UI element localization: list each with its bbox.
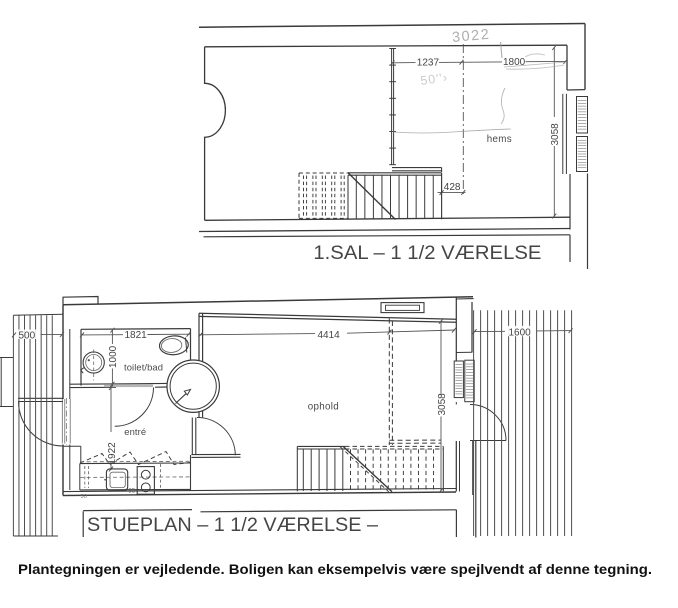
svg-text:1821: 1821 — [125, 330, 148, 341]
svg-text:toilet/bad: toilet/bad — [124, 361, 163, 372]
svg-text:1.SAL – 1 1/2 VÆRELSE: 1.SAL – 1 1/2 VÆRELSE — [313, 242, 541, 264]
svg-text:hems: hems — [487, 134, 512, 145]
svg-text:1000: 1000 — [108, 345, 119, 368]
svg-text:3058: 3058 — [550, 123, 561, 146]
svg-text:ophold: ophold — [308, 401, 339, 412]
svg-text:50: 50 — [81, 494, 87, 500]
svg-text:Plantegningen er vejledende. B: Plantegningen er vejledende. Boligen kan… — [18, 561, 652, 577]
svg-text:1237: 1237 — [417, 57, 440, 68]
svg-text:4414: 4414 — [318, 330, 341, 341]
svg-text:STUEPLAN – 1 1/2 VÆRELSE –: STUEPLAN – 1 1/2 VÆRELSE – — [87, 514, 378, 536]
svg-text:85: 85 — [128, 487, 136, 494]
svg-text:500: 500 — [19, 330, 36, 341]
svg-text:1922: 1922 — [107, 442, 118, 465]
svg-text:entré: entré — [124, 426, 146, 437]
svg-text:3058: 3058 — [437, 393, 448, 416]
svg-text:3022: 3022 — [451, 27, 491, 46]
svg-text:428: 428 — [444, 182, 461, 193]
svg-text:1600: 1600 — [509, 328, 532, 339]
